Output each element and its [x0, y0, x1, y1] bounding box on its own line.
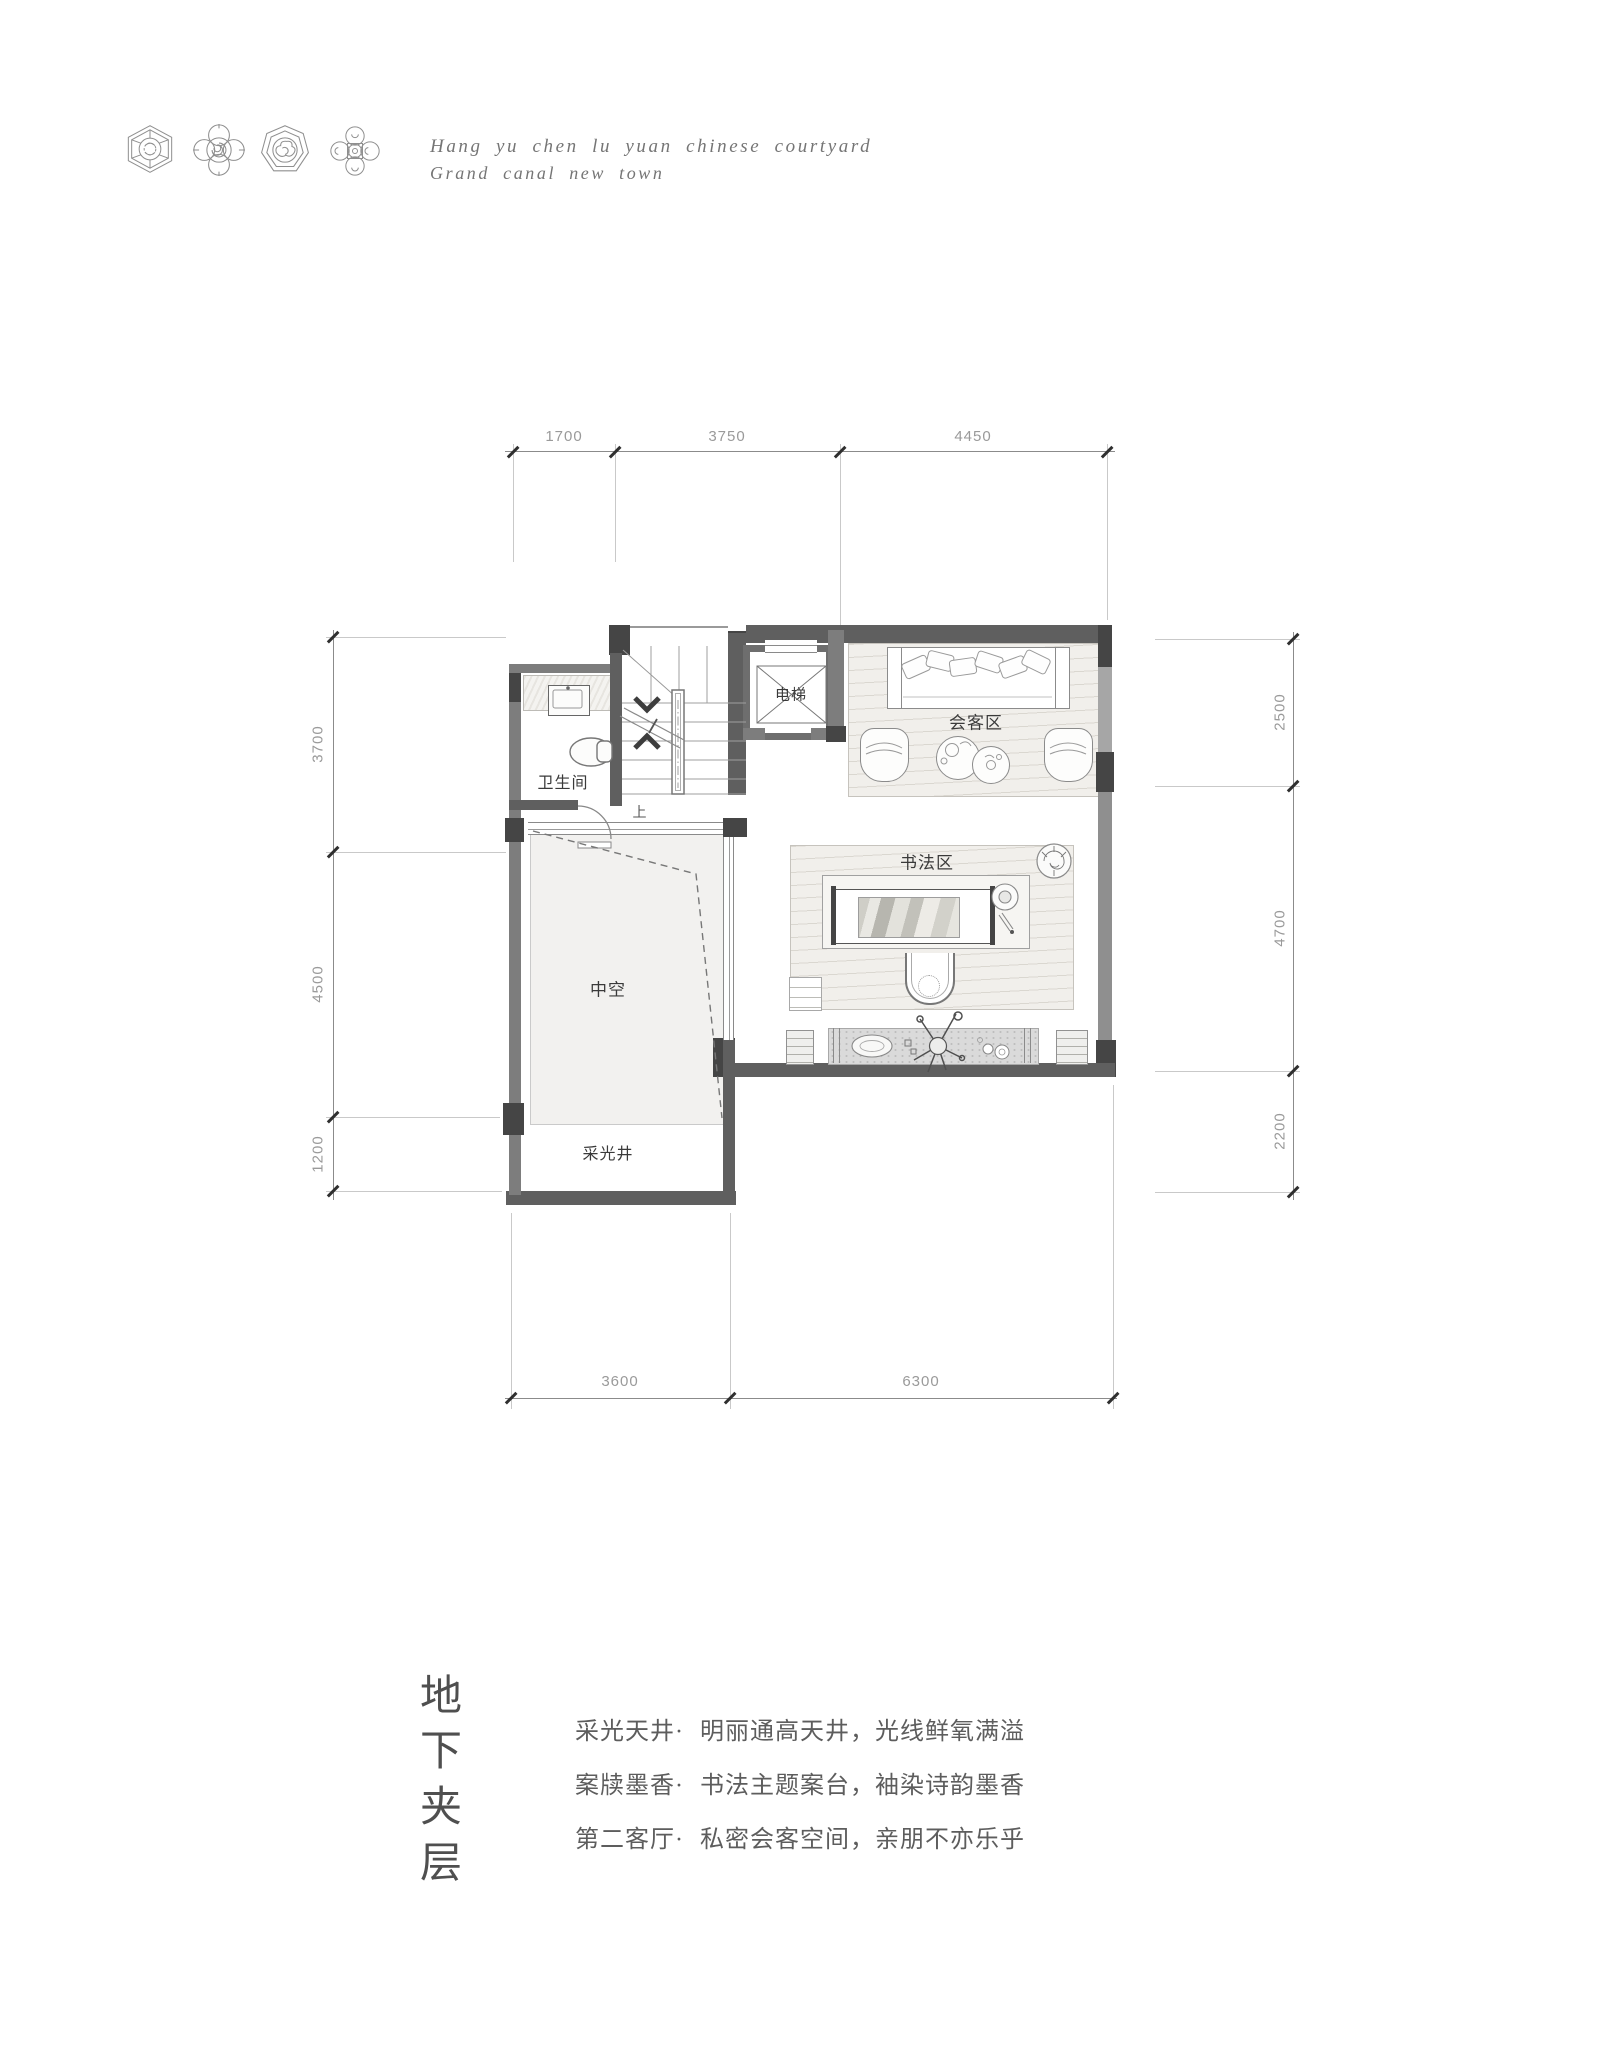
dim-extension [1155, 639, 1300, 640]
dim-extension [326, 1117, 500, 1118]
bathroom-top-wall [509, 664, 622, 673]
elevator-door-lines [765, 645, 817, 653]
dim-value: 1700 [509, 428, 619, 445]
hexagon-medallion-icon [125, 122, 175, 176]
right-wall [1098, 792, 1112, 1040]
floorplan-page: Hang yu chen lu yuan chinese courtyard G… [0, 0, 1602, 2063]
dim-value: 4700 [1272, 909, 1289, 946]
heptagon-cloud-medallion-icon [259, 124, 311, 176]
dim-extension [615, 444, 616, 562]
room-label-calligraphy-area: 书法区 [900, 849, 954, 874]
header-title-english: Hang yu chen lu yuan chinese courtyard [430, 136, 872, 158]
dim-extension [1107, 444, 1108, 620]
quatrefoil-rings-medallion-icon [330, 126, 380, 176]
room-label-bathroom: 卫生间 [537, 769, 588, 793]
wall-pillar [723, 818, 747, 837]
dim-value: 6300 [866, 1373, 976, 1390]
elevator-bottom-stub [743, 728, 765, 740]
stairs-up-label: 上 [633, 802, 648, 822]
console-rail [833, 1028, 840, 1063]
side-stool-right [1056, 1030, 1088, 1065]
quatrefoil-spiral-medallion-icon [193, 124, 245, 176]
header: Hang yu chen lu yuan chinese courtyard G… [0, 0, 1602, 220]
floor-title-char: 地 [418, 1662, 464, 1723]
console-table [828, 1028, 1039, 1065]
dim-extension [326, 852, 506, 853]
wall-pillar [505, 818, 524, 842]
desk-side-table [789, 977, 822, 1011]
lightwell-right-wall [723, 1040, 735, 1205]
dim-value: 3700 [310, 725, 327, 762]
armchair-right [1044, 728, 1093, 782]
dim-value: 4450 [918, 428, 1028, 445]
bathroom-sink [548, 685, 590, 716]
wall-pillar [609, 625, 630, 655]
console-rail [1024, 1028, 1031, 1063]
armchair-left [860, 728, 909, 782]
bottom-wall [715, 1063, 1115, 1077]
sofa-armrest [888, 648, 902, 708]
floor-title-char: 夹 [418, 1773, 464, 1834]
calligraphy-stool [905, 953, 955, 1005]
tea-table-small [972, 746, 1010, 784]
dim-value: 2500 [1272, 693, 1289, 730]
feature-text: 私密会客空间，亲朋不亦乐乎 [700, 1819, 1025, 1854]
dim-value: 1200 [310, 1135, 327, 1172]
room-label-void: 中空 [590, 976, 626, 1001]
feature-label: 第二客厅· [575, 1819, 684, 1854]
void-area [530, 823, 725, 1125]
room-label-light-well: 采光井 [582, 1140, 633, 1164]
dim-value: 4500 [310, 965, 327, 1002]
dim-extension [513, 444, 514, 562]
dim-value: 3750 [672, 428, 782, 445]
right-wall-corner [1098, 625, 1112, 667]
scroll-roller [990, 886, 995, 945]
dim-value: 2200 [1272, 1112, 1289, 1149]
dim-extension [840, 444, 841, 625]
bathroom-bottom-wall [509, 800, 578, 810]
dim-extension [1155, 786, 1300, 787]
dim-extension [1155, 1192, 1300, 1193]
room-label-elevator: 电梯 [775, 684, 807, 705]
right-wall-window [1098, 667, 1112, 752]
feature-label: 案牍墨香· [575, 1765, 684, 1800]
feature-label: 采光天井· [575, 1711, 684, 1746]
feature-text: 明丽通高天井，光线鲜氧满溢 [700, 1711, 1025, 1746]
room-label-meeting-area: 会客区 [949, 709, 1003, 734]
floor-title-char: 层 [418, 1829, 464, 1890]
sofa-armrest [1055, 648, 1069, 708]
wall-pillar [503, 1103, 524, 1135]
stair-top-opening [630, 626, 728, 628]
void-top-window [528, 822, 725, 835]
side-stool-left [786, 1030, 814, 1065]
feature-text: 书法主题案台，袖染诗韵墨香 [700, 1765, 1025, 1800]
floor-title-char: 下 [418, 1717, 464, 1778]
scroll-roller [831, 886, 836, 945]
lightwell-bottom-wall [506, 1191, 736, 1205]
dim-extension [326, 637, 506, 638]
sofa [887, 647, 1070, 709]
dim-line [505, 451, 1115, 452]
dim-extension [1155, 1071, 1300, 1072]
bathroom-right-wall [610, 653, 622, 806]
void-right-window [723, 837, 734, 1040]
dim-extension [1113, 1085, 1114, 1409]
header-subtitle-english: Grand canal new town [430, 163, 665, 184]
dim-line [1293, 632, 1294, 1200]
stool-cushion [918, 975, 940, 997]
dim-extension [730, 1213, 731, 1409]
dim-value: 3600 [565, 1373, 675, 1390]
dim-extension [326, 1191, 502, 1192]
dim-line [505, 1398, 1117, 1399]
dim-extension [511, 1213, 512, 1409]
wall-pillar [826, 726, 846, 742]
toilet [570, 738, 612, 766]
right-wall-pillar [1096, 752, 1114, 792]
landscape-painting [858, 897, 960, 938]
void-left-wall [509, 820, 521, 1195]
